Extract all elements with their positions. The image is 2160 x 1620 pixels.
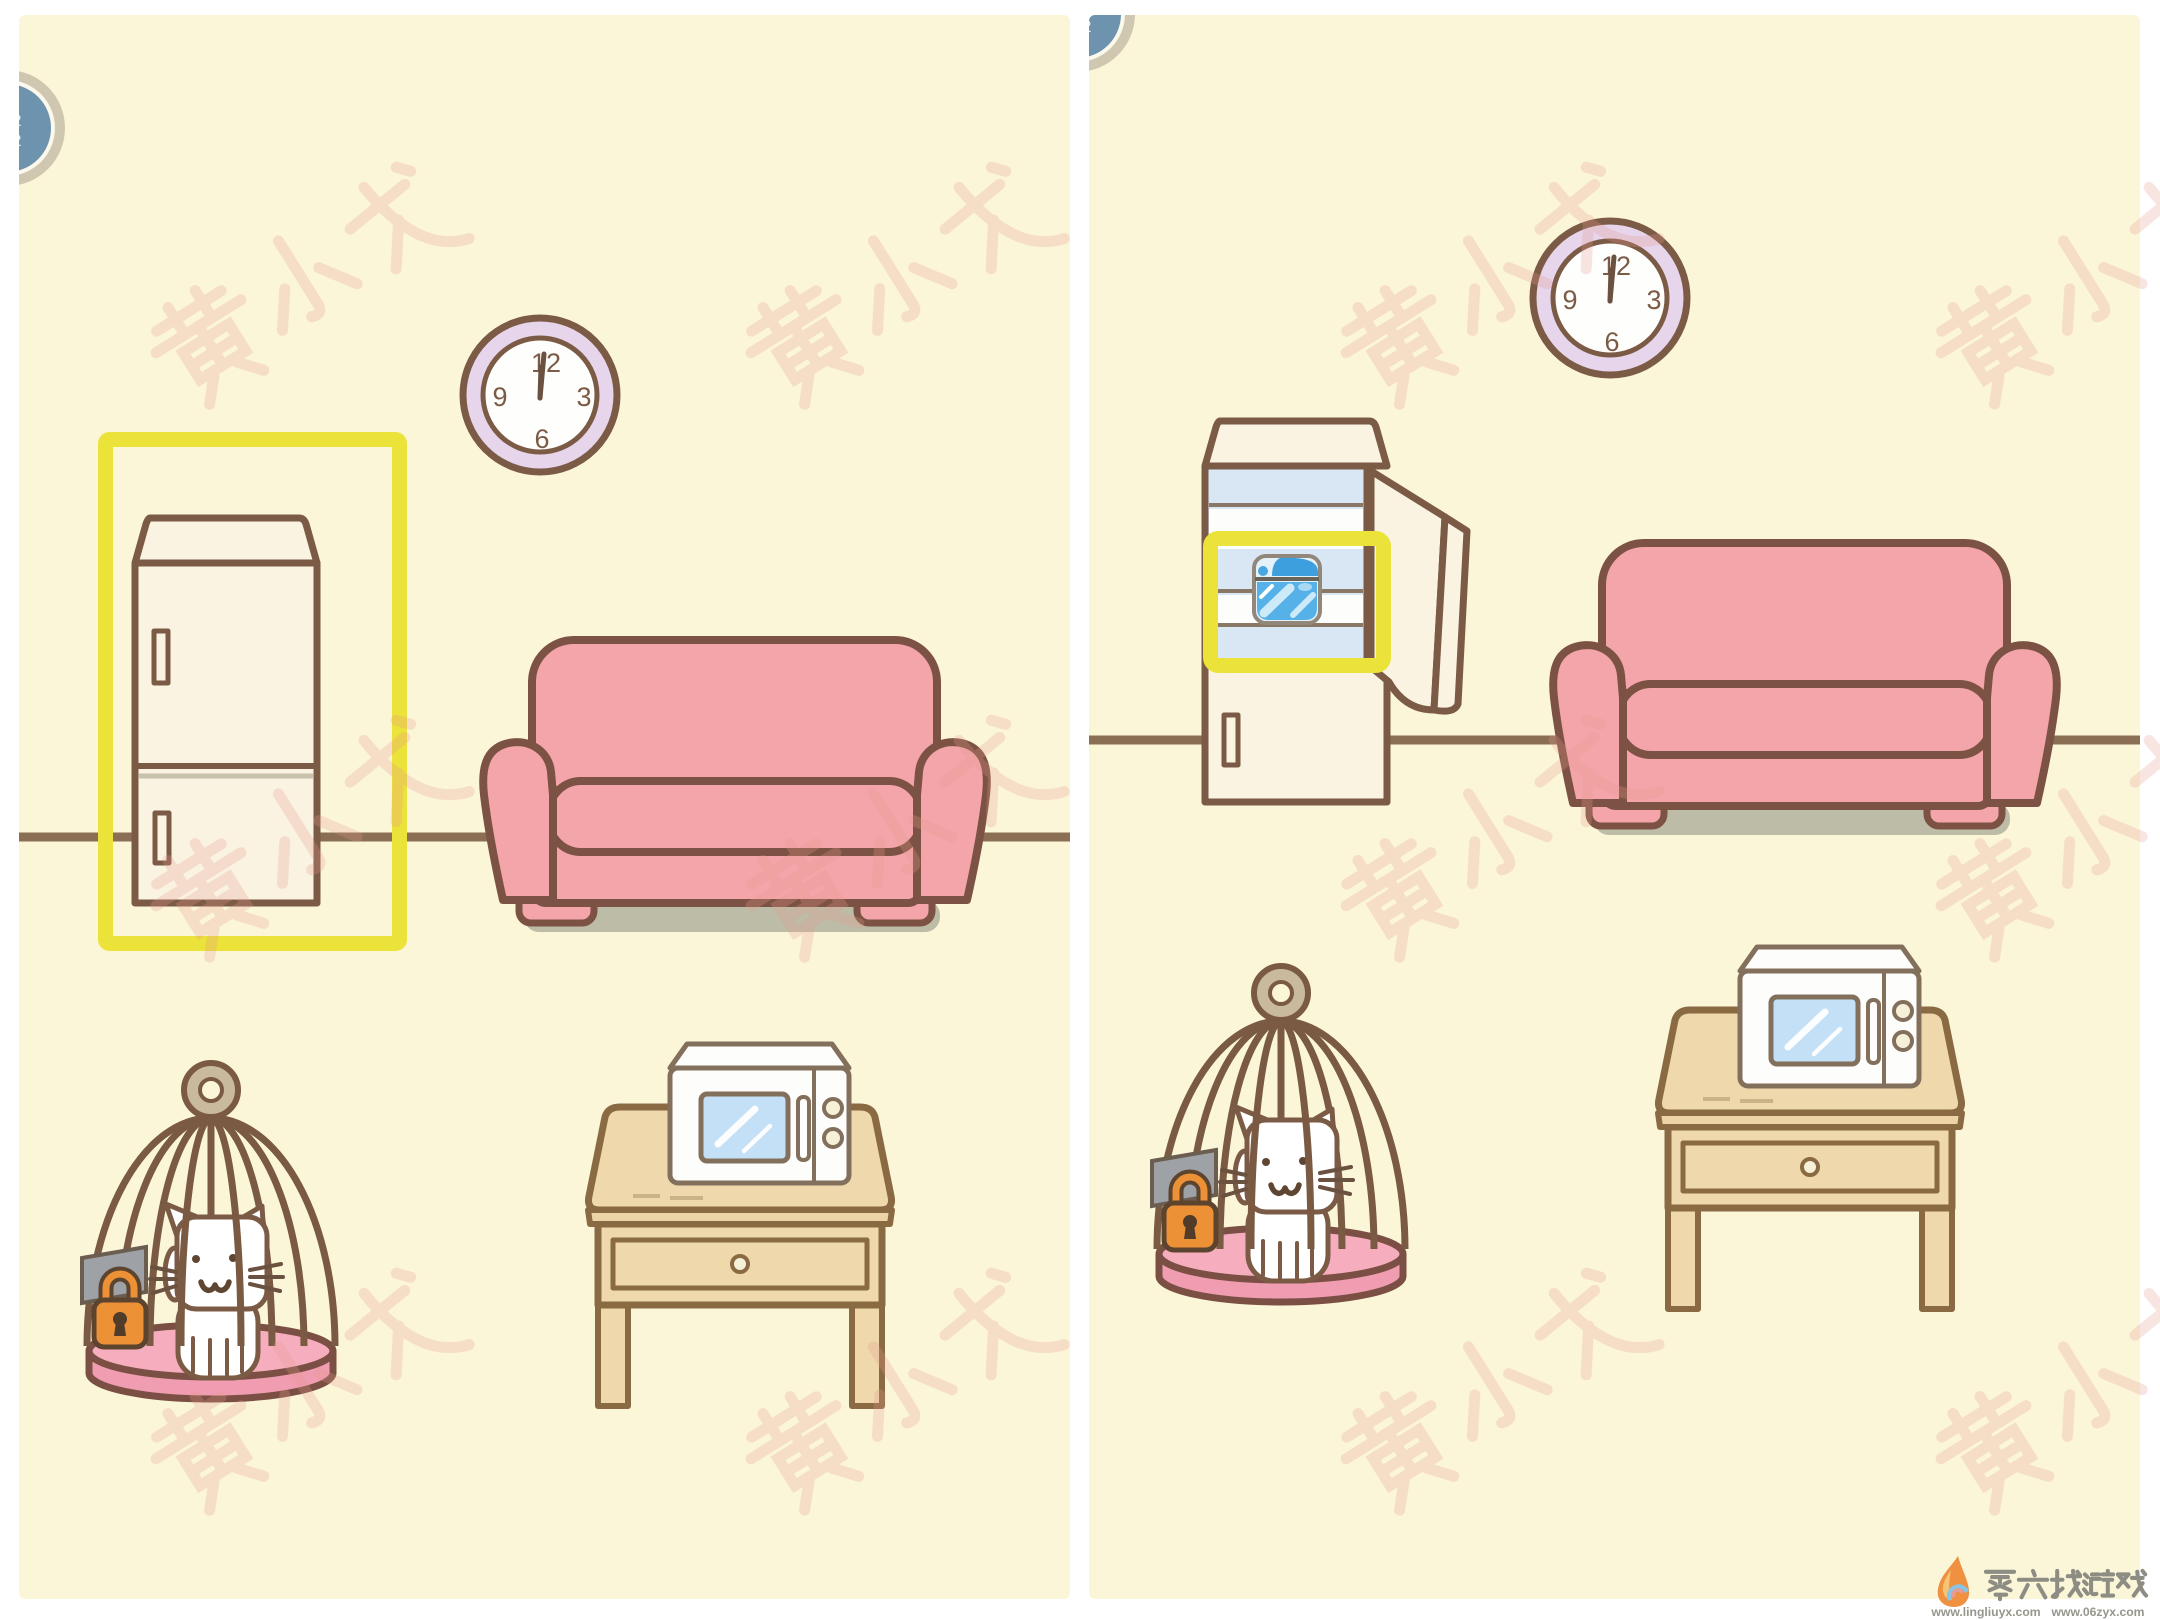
svg-text:www.06zyx.com: www.06zyx.com (2050, 1605, 2144, 1619)
svg-text:www.lingliuyx.com: www.lingliuyx.com (1930, 1605, 2040, 1619)
